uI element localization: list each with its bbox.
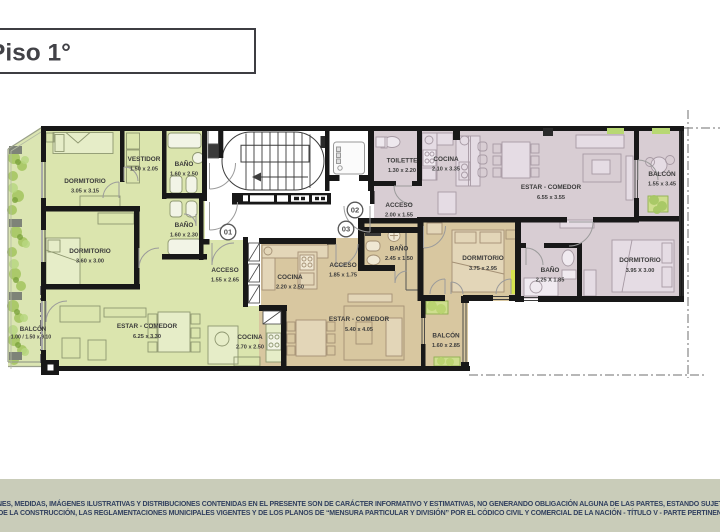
svg-text:BALCÓN: BALCÓN [20, 325, 47, 333]
svg-text:BAÑO: BAÑO [175, 220, 194, 229]
svg-text:ESTAR - COMEDOR: ESTAR - COMEDOR [329, 316, 390, 323]
svg-text:1.50 x 2.05: 1.50 x 2.05 [130, 167, 158, 173]
svg-text:1.55 x 2.65: 1.55 x 2.65 [211, 278, 239, 284]
svg-text:2.20 x 2.50: 2.20 x 2.50 [276, 285, 304, 291]
svg-text:2.45 x 1.50: 2.45 x 1.50 [385, 256, 413, 262]
svg-text:E DE LA CONSTRUCCIÓN, LAS REGL: E DE LA CONSTRUCCIÓN, LAS REGLAMENTACION… [0, 508, 720, 517]
svg-text:ACCESO: ACCESO [211, 267, 238, 274]
svg-text:1.60 x 2.50: 1.60 x 2.50 [170, 172, 198, 178]
svg-text:1.30 x 2.20: 1.30 x 2.20 [388, 168, 416, 174]
svg-text:1.85 x 1.75: 1.85 x 1.75 [329, 273, 357, 279]
svg-text:2.25 X 1.85: 2.25 X 1.85 [536, 278, 565, 284]
svg-text:6.25 x 3.30: 6.25 x 3.30 [133, 334, 161, 340]
svg-text:ESTAR - COMEDOR: ESTAR - COMEDOR [117, 323, 178, 330]
svg-text:TOILETTE: TOILETTE [387, 158, 419, 165]
svg-text:DORMITORIO: DORMITORIO [619, 257, 660, 264]
svg-text:1.60 x 2.85: 1.60 x 2.85 [432, 343, 460, 349]
svg-text:ACCESO: ACCESO [385, 202, 412, 209]
svg-text:DORMITORIO: DORMITORIO [462, 255, 503, 262]
svg-text:1.00 / 1.50 x 9.10: 1.00 / 1.50 x 9.10 [11, 335, 51, 341]
svg-text:COCINA: COCINA [277, 274, 303, 281]
svg-text:NES, MEDIDAS, IMÁGENES ILUSTRA: NES, MEDIDAS, IMÁGENES ILUSTRATIVAS Y DI… [0, 499, 720, 508]
svg-text:6.55 x 3.55: 6.55 x 3.55 [537, 195, 565, 201]
svg-text:BALCÓN: BALCÓN [432, 331, 460, 340]
svg-text:DORMITORIO: DORMITORIO [69, 248, 110, 255]
svg-text:Piso 1°: Piso 1° [0, 40, 71, 67]
svg-text:03: 03 [342, 225, 350, 234]
svg-text:BAÑO: BAÑO [175, 159, 194, 168]
svg-text:DORMITORIO: DORMITORIO [64, 178, 105, 185]
svg-text:VESTIDOR: VESTIDOR [128, 156, 161, 163]
svg-text:01: 01 [224, 228, 233, 237]
svg-text:BAÑO: BAÑO [541, 265, 560, 274]
svg-text:1.60 x 2.30: 1.60 x 2.30 [170, 233, 198, 239]
svg-text:5.40 x 4.05: 5.40 x 4.05 [345, 327, 373, 333]
svg-text:ESTAR - COMEDOR: ESTAR - COMEDOR [521, 184, 582, 191]
svg-text:ACCESO: ACCESO [329, 262, 356, 269]
svg-text:3.95 X 3.00: 3.95 X 3.00 [626, 268, 655, 274]
svg-text:02: 02 [351, 206, 359, 215]
svg-text:2.10 x 3.35: 2.10 x 3.35 [432, 167, 460, 173]
svg-text:COCINA: COCINA [433, 156, 459, 163]
svg-text:2.70 x 2.50: 2.70 x 2.50 [236, 345, 264, 351]
svg-text:3.60 x 3.00: 3.60 x 3.00 [76, 259, 104, 265]
svg-text:BALCÓN: BALCÓN [648, 169, 676, 178]
svg-text:1.55 x 3.45: 1.55 x 3.45 [648, 182, 676, 188]
svg-text:3.05 x 3.15: 3.05 x 3.15 [71, 189, 99, 195]
svg-text:3.75 x 2.95: 3.75 x 2.95 [469, 266, 497, 272]
svg-text:2.00 x 1.55: 2.00 x 1.55 [385, 213, 413, 219]
svg-text:BAÑO: BAÑO [390, 244, 409, 253]
svg-text:COCINA: COCINA [237, 334, 263, 341]
